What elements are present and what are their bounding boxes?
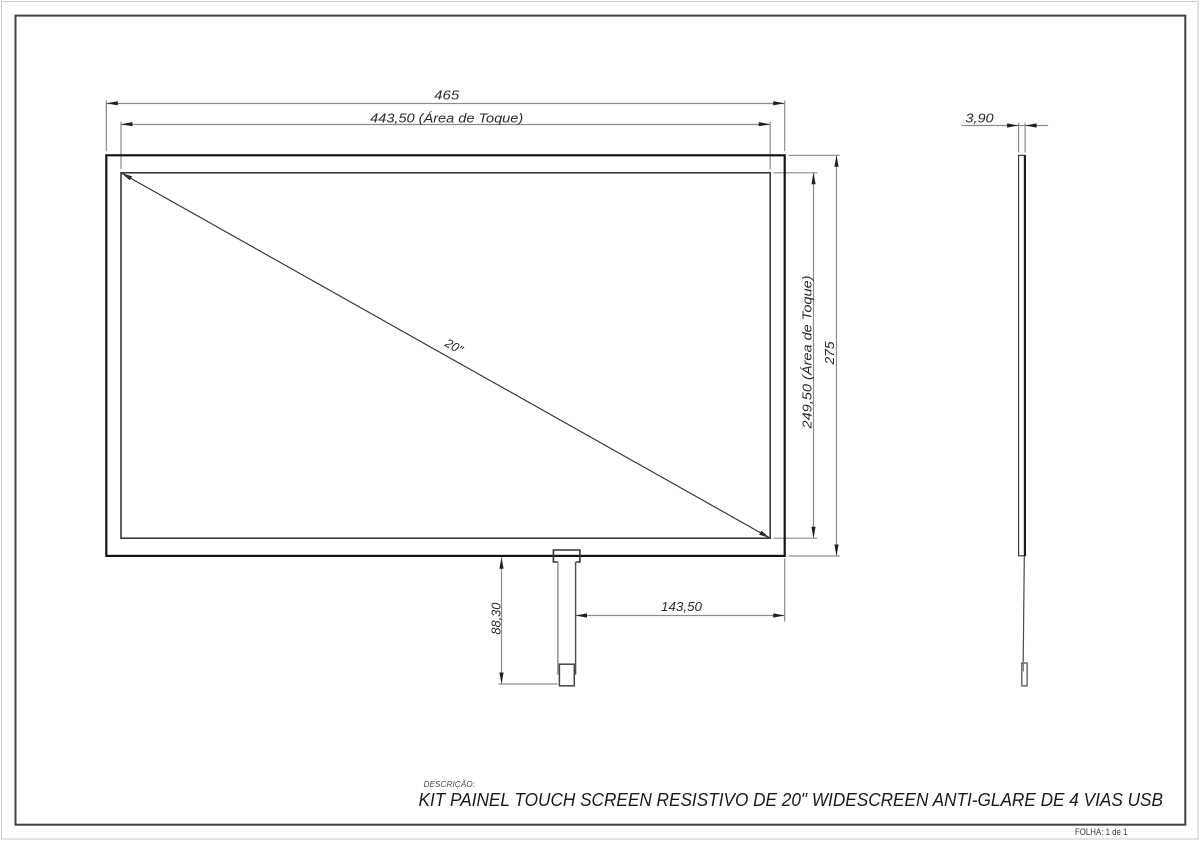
svg-text:143,50: 143,50 [661, 599, 703, 614]
svg-text:KIT PAINEL TOUCH SCREEN RESIST: KIT PAINEL TOUCH SCREEN RESISTIVO DE 20"… [419, 789, 1164, 810]
svg-text:275: 275 [823, 341, 837, 365]
svg-text:443,50 (Área de Toque): 443,50 (Área de Toque) [370, 110, 523, 125]
svg-text:3,90: 3,90 [965, 111, 994, 126]
svg-text:DESCRIÇÃO:: DESCRIÇÃO: [424, 779, 476, 789]
svg-text:88,30: 88,30 [489, 602, 504, 635]
svg-text:FOLHA: 1 de 1: FOLHA: 1 de 1 [1075, 827, 1128, 838]
svg-text:465: 465 [434, 89, 459, 103]
svg-text:249,50 (Área de Toque): 249,50 (Área de Toque) [800, 276, 815, 430]
